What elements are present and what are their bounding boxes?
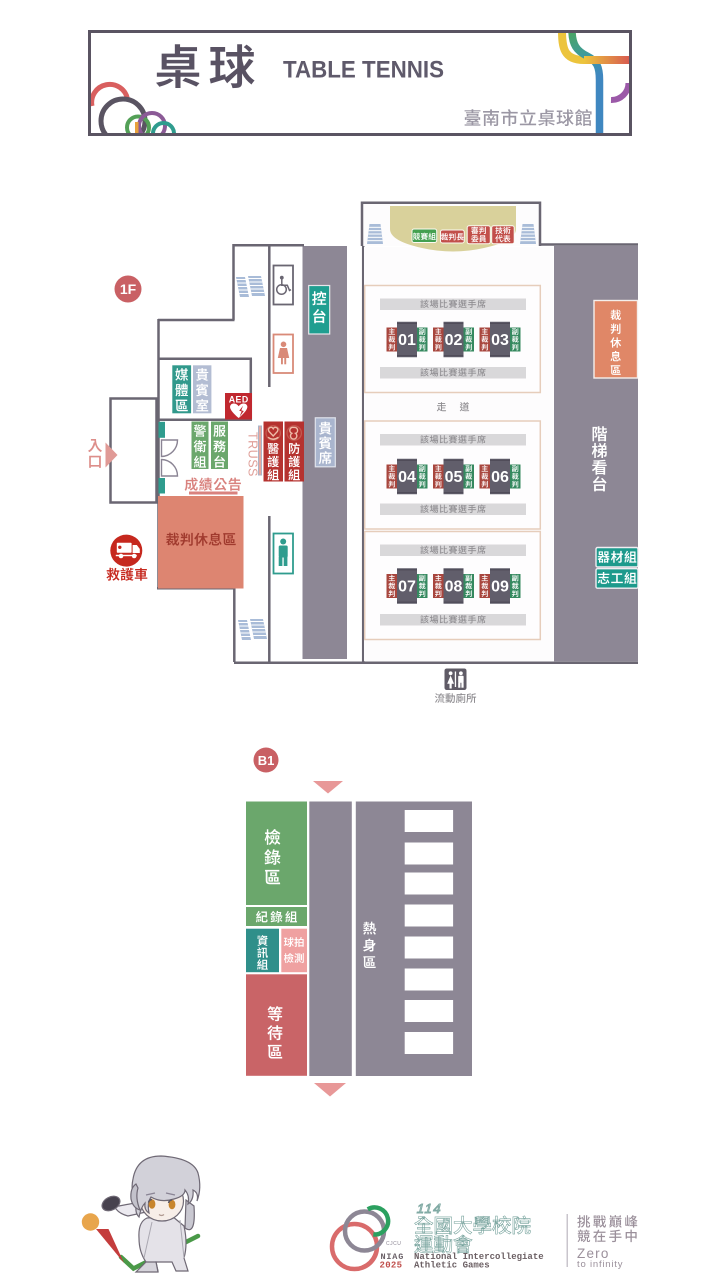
svg-text:TRUSS: TRUSS — [246, 432, 260, 477]
svg-text:1F: 1F — [120, 281, 137, 297]
svg-text:B1: B1 — [258, 753, 275, 768]
svg-text:09: 09 — [491, 579, 509, 596]
svg-text:2025: 2025 — [380, 1261, 403, 1271]
svg-text:114: 114 — [415, 1201, 444, 1216]
svg-text:TABLE TENNIS: TABLE TENNIS — [283, 57, 444, 84]
svg-text:01: 01 — [398, 332, 416, 349]
svg-text:07: 07 — [398, 579, 416, 596]
svg-text:08: 08 — [445, 579, 463, 596]
svg-text:AED: AED — [229, 395, 249, 405]
svg-text:to infinity: to infinity — [577, 1259, 623, 1270]
svg-text:03: 03 — [491, 332, 509, 349]
svg-text:CJCU: CJCU — [386, 1241, 401, 1247]
svg-text:Athletic Games: Athletic Games — [414, 1261, 490, 1271]
svg-text:05: 05 — [445, 469, 463, 486]
svg-text:02: 02 — [445, 332, 463, 349]
svg-text:06: 06 — [491, 469, 509, 486]
svg-text:04: 04 — [398, 469, 416, 486]
